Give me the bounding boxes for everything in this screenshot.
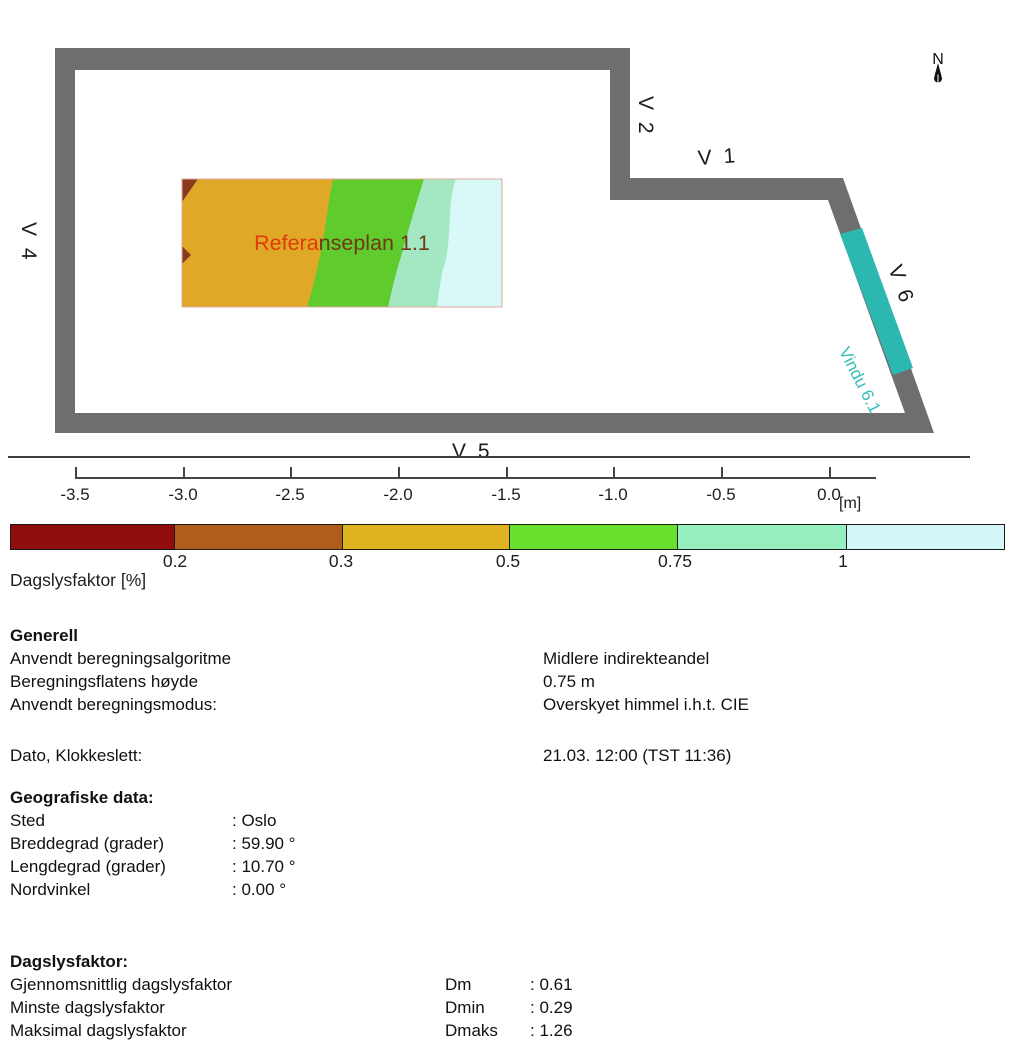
dagslysfaktor-heading: Dagslysfaktor: bbox=[10, 950, 573, 973]
row-symbol: Dmaks bbox=[445, 1019, 530, 1042]
legend-segment-5 bbox=[678, 525, 847, 550]
window-label-v5-clip: V 5 bbox=[452, 441, 516, 457]
ruler-tick bbox=[829, 467, 831, 478]
row-value: : 0.61 bbox=[530, 973, 573, 996]
row-symbol: Dm bbox=[445, 973, 530, 996]
row-value: : Oslo bbox=[232, 809, 276, 832]
row-label: Gjennomsnittlig dagslysfaktor bbox=[10, 973, 445, 996]
row-label: Nordvinkel bbox=[10, 878, 232, 901]
ruler-tick bbox=[75, 467, 77, 478]
row-label: Dato, Klokkeslett: bbox=[10, 744, 543, 767]
legend-boundary-label: 0.2 bbox=[163, 551, 187, 572]
row-label: Sted bbox=[10, 809, 232, 832]
legend-boundary-label: 0.5 bbox=[496, 551, 520, 572]
ruler-tick-label: -1.0 bbox=[598, 485, 627, 505]
ruler-tick-label: -3.5 bbox=[60, 485, 89, 505]
row-label: Anvendt beregningsmodus: bbox=[10, 693, 543, 716]
geografiske-row: Nordvinkel : 0.00 ° bbox=[10, 878, 296, 901]
row-label: Maksimal dagslysfaktor bbox=[10, 1019, 445, 1042]
window-label-v1: V 1 bbox=[697, 144, 739, 171]
row-value: 0.75 m bbox=[543, 670, 595, 693]
geografiske-row: Sted : Oslo bbox=[10, 809, 296, 832]
ruler-tick bbox=[721, 467, 723, 478]
row-label: Minste dagslysfaktor bbox=[10, 996, 445, 1019]
ruler-tick-label: -3.0 bbox=[168, 485, 197, 505]
legend-boundary-label: 0.3 bbox=[329, 551, 353, 572]
plan-title-part1: Refera bbox=[254, 231, 319, 255]
dagslysfaktor-row: Gjennomsnittlig dagslysfaktor Dm : 0.61 bbox=[10, 973, 573, 996]
row-value: : 0.00 ° bbox=[232, 878, 286, 901]
ruler-line bbox=[75, 477, 876, 479]
legend-segment-2 bbox=[175, 525, 343, 550]
row-value: 21.03. 12:00 (TST 11:36) bbox=[543, 744, 731, 767]
ruler-tick-label: -2.5 bbox=[275, 485, 304, 505]
legend-segment-6 bbox=[847, 525, 1005, 550]
window-label-v5: V 5 bbox=[452, 441, 493, 457]
ruler-tick-label: -1.5 bbox=[491, 485, 520, 505]
generell-row: Anvendt beregningsmodus: Overskyet himme… bbox=[10, 693, 749, 716]
geografiske-heading: Geografiske data: bbox=[10, 786, 296, 809]
section-generell: Generell Anvendt beregningsalgoritme Mid… bbox=[10, 624, 749, 767]
window-label-v3-clip: V 3 bbox=[313, 22, 377, 41]
row-label: Anvendt beregningsalgoritme bbox=[10, 647, 543, 670]
generell-row: Dato, Klokkeslett: 21.03. 12:00 (TST 11:… bbox=[10, 744, 749, 767]
ruler-tick-label: -2.0 bbox=[383, 485, 412, 505]
section-geografiske: Geografiske data: Sted : Oslo Breddegrad… bbox=[10, 786, 296, 901]
generell-heading: Generell bbox=[10, 624, 749, 647]
legend-boundary-label: 0.75 bbox=[658, 551, 692, 572]
separator-line bbox=[8, 456, 970, 458]
geografiske-row: Lengdegrad (grader) : 10.70 ° bbox=[10, 855, 296, 878]
ruler-tick-label: 0.0 bbox=[817, 485, 841, 505]
generell-row: Beregningsflatens høyde 0.75 m bbox=[10, 670, 749, 693]
ruler-unit-label: [m] bbox=[839, 495, 861, 513]
row-value: : 0.29 bbox=[530, 996, 573, 1019]
plan-title: Referanseplan 1.1 bbox=[182, 231, 502, 256]
legend-segment-3 bbox=[343, 525, 510, 550]
legend-segment-4 bbox=[510, 525, 678, 550]
ruler-tick bbox=[290, 467, 292, 478]
row-label: Beregningsflatens høyde bbox=[10, 670, 543, 693]
geografiske-row: Breddegrad (grader) : 59.90 ° bbox=[10, 832, 296, 855]
ruler-tick bbox=[398, 467, 400, 478]
ruler-tick-label: -0.5 bbox=[706, 485, 735, 505]
daylight-legend-bar bbox=[10, 524, 1005, 550]
ruler-tick bbox=[506, 467, 508, 478]
ruler-tick bbox=[183, 467, 185, 478]
generell-row: Anvendt beregningsalgoritme Midlere indi… bbox=[10, 647, 749, 670]
dagslysfaktor-row: Minste dagslysfaktor Dmin : 0.29 bbox=[10, 996, 573, 1019]
window-label-v4: V 4 bbox=[16, 222, 40, 263]
window-label-v2: V 2 bbox=[633, 96, 657, 137]
ruler-tick bbox=[613, 467, 615, 478]
compass: N bbox=[929, 53, 947, 83]
row-label: Lengdegrad (grader) bbox=[10, 855, 232, 878]
plan-title-part2: nseplan 1.1 bbox=[319, 231, 430, 255]
legend-segment-1 bbox=[11, 525, 175, 550]
row-symbol: Dmin bbox=[445, 996, 530, 1019]
row-value: : 1.26 bbox=[530, 1019, 573, 1042]
row-value: : 10.70 ° bbox=[232, 855, 296, 878]
legend-boundary-label: 1 bbox=[838, 551, 848, 572]
row-label: Breddegrad (grader) bbox=[10, 832, 232, 855]
section-dagslysfaktor: Dagslysfaktor: Gjennomsnittlig dagslysfa… bbox=[10, 950, 573, 1042]
row-value: Overskyet himmel i.h.t. CIE bbox=[543, 693, 749, 716]
row-value: : 59.90 ° bbox=[232, 832, 296, 855]
dagslysfaktor-row: Maksimal dagslysfaktor Dmaks : 1.26 bbox=[10, 1019, 573, 1042]
row-value: Midlere indirekteandel bbox=[543, 647, 709, 670]
legend-title: Dagslysfaktor [%] bbox=[10, 570, 146, 591]
